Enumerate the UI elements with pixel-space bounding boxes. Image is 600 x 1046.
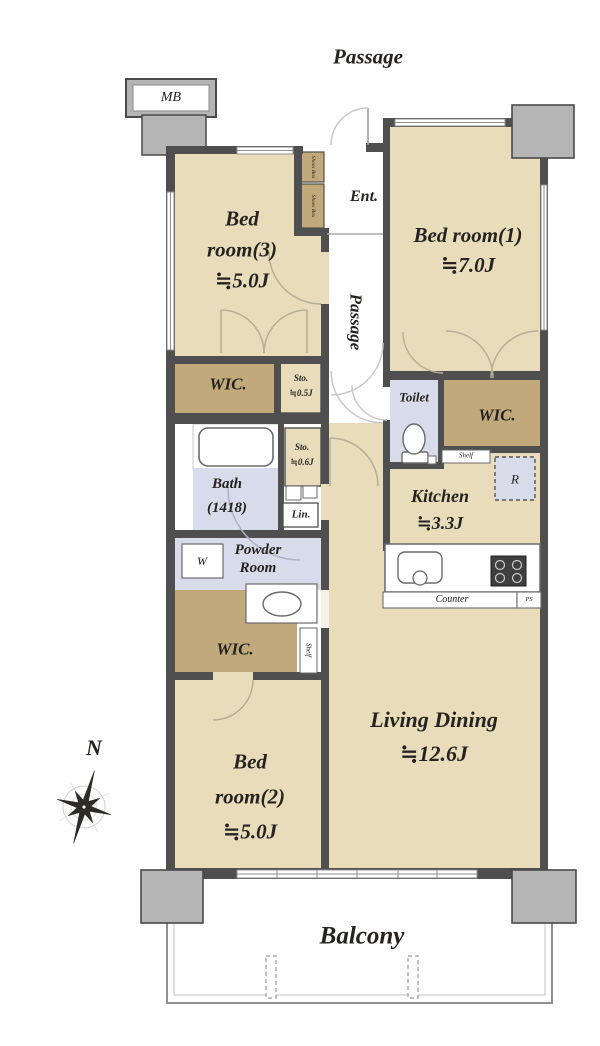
bath-name: Bath bbox=[207, 472, 247, 496]
pillar-bottom-left bbox=[141, 870, 203, 923]
pillar-top-right bbox=[512, 105, 574, 158]
bedroom2-size: ≒5.0J bbox=[215, 815, 285, 850]
balcony-partition-mark bbox=[408, 956, 418, 998]
wic-left-label: WIC. bbox=[209, 376, 246, 393]
meter-box-label: MB bbox=[161, 91, 181, 105]
bedroom1-name: Bed room(1) bbox=[413, 220, 522, 250]
living-dining-size: ≒12.6J bbox=[370, 737, 498, 771]
storage-05-name: Sto. bbox=[289, 371, 312, 386]
living-dining-label: Living Dining ≒12.6J bbox=[370, 703, 498, 771]
shoes-box-upper-label: Shoes Box bbox=[309, 156, 315, 179]
bedroom3-name: Bed bbox=[207, 204, 277, 235]
bedroom1-label: Bed room(1) ≒7.0J bbox=[413, 220, 522, 280]
storage-06-name: Sto. bbox=[290, 440, 313, 455]
washer-label: W bbox=[197, 555, 207, 567]
balcony-label: Balcony bbox=[320, 924, 405, 949]
bedroom2-label: Bed room(2) ≒5.0J bbox=[215, 745, 285, 850]
mini-shelf-box bbox=[303, 486, 317, 498]
shelf-bottom-label: Shelf bbox=[305, 643, 312, 657]
linen-label: Lin. bbox=[292, 510, 311, 521]
storage-05-size: ≒0.5J bbox=[289, 386, 312, 401]
pipe-space-label: PS bbox=[525, 597, 532, 604]
mini-shelf-box bbox=[286, 486, 301, 500]
bedroom3-size: ≒5.0J bbox=[207, 266, 277, 297]
kitchen-size: ≒3.3J bbox=[411, 510, 469, 537]
stove-icon bbox=[491, 556, 526, 586]
compass-north-label: N bbox=[86, 737, 102, 759]
toilet-label: Toilet bbox=[399, 391, 429, 404]
bedroom2-name: Bed bbox=[215, 745, 285, 780]
entrance-door-arc bbox=[331, 108, 368, 145]
bath-size: (1418) bbox=[207, 496, 247, 520]
powder-room-name2: Room bbox=[235, 559, 282, 577]
bathtub-icon bbox=[199, 428, 273, 466]
kitchen-label: Kitchen ≒3.3J bbox=[411, 483, 469, 537]
kitchen-sink-icon bbox=[413, 571, 427, 585]
toilet-door-arc bbox=[352, 385, 387, 420]
passage-vertical-label: Passage bbox=[348, 294, 365, 351]
storage-06-size: ≒0.6J bbox=[290, 455, 313, 470]
shoes-box-lower-label: Shoes Box bbox=[309, 195, 315, 218]
bath-label: Bath (1418) bbox=[207, 472, 247, 520]
storage-06-label: Sto. ≒0.6J bbox=[290, 440, 313, 470]
compass-rose bbox=[47, 763, 122, 851]
pillar-bottom-right bbox=[512, 870, 576, 923]
bedroom2-name2: room(2) bbox=[215, 780, 285, 815]
wic-right-label: WIC. bbox=[478, 407, 515, 424]
powder-room-name: Powder bbox=[235, 541, 282, 559]
kitchen-name: Kitchen bbox=[411, 483, 469, 510]
bedroom1-size: ≒7.0J bbox=[413, 250, 522, 280]
powder-room-label: Powder Room bbox=[235, 541, 282, 577]
balcony-partition-mark bbox=[266, 956, 276, 998]
floor-plan-drawing bbox=[0, 0, 600, 1046]
entrance-label: Ent. bbox=[350, 189, 378, 205]
passage-top-label: Passage bbox=[333, 47, 403, 68]
counter-label: Counter bbox=[436, 595, 469, 605]
floor-plan-page: Passage MB Shoes Box Shoes Box Ent. Pass… bbox=[0, 0, 600, 1046]
refrigerator-label: R bbox=[511, 473, 519, 486]
bedroom3-label: Bed room(3) ≒5.0J bbox=[207, 204, 277, 297]
bedroom3-name2: room(3) bbox=[207, 235, 277, 266]
wic-bottom-label: WIC. bbox=[216, 641, 253, 658]
storage-05-label: Sto. ≒0.5J bbox=[289, 371, 312, 401]
shelf-right-label: Shelf bbox=[459, 453, 473, 460]
wash-basin-icon bbox=[263, 592, 301, 616]
living-dining-name: Living Dining bbox=[370, 703, 498, 737]
